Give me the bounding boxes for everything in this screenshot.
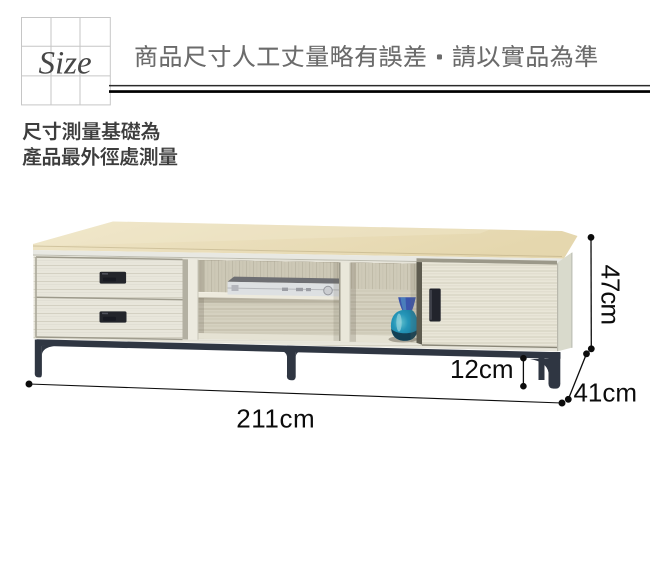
svg-text:47cm: 47cm [596, 265, 626, 326]
svg-text:Size: Size [39, 46, 92, 82]
svg-text:211cm: 211cm [236, 404, 315, 434]
svg-text:12cm: 12cm [450, 354, 514, 384]
svg-text:41cm: 41cm [574, 378, 638, 408]
